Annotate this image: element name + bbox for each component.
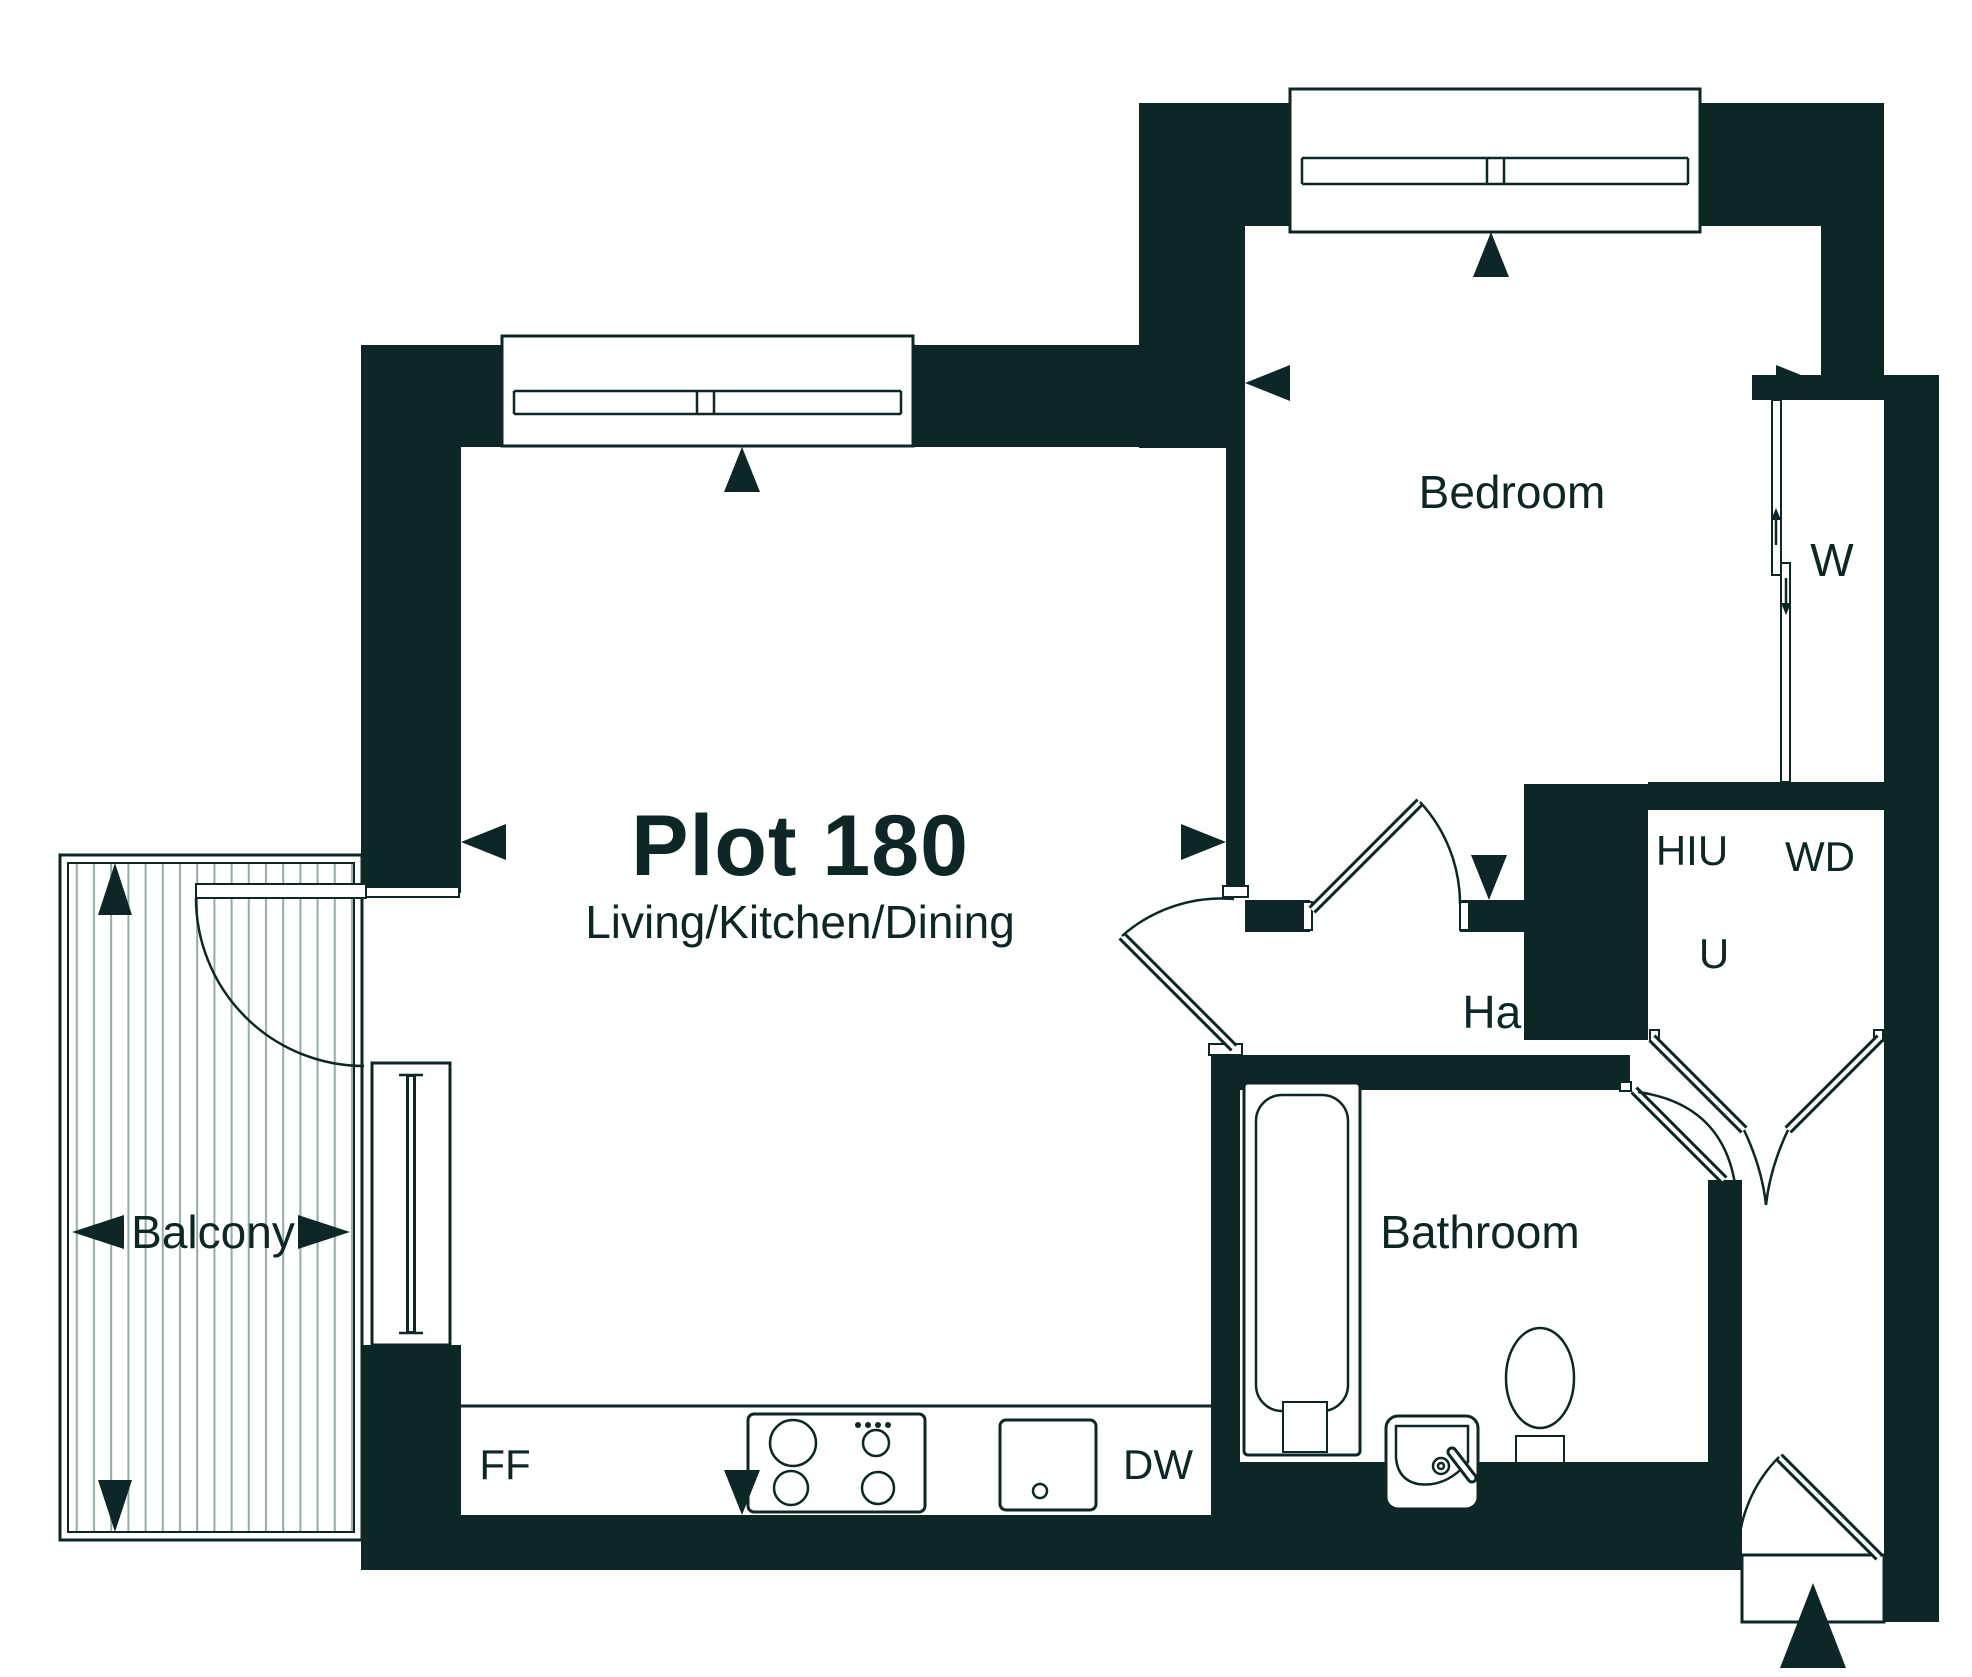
- window-frame-bedroom-icon: [1290, 89, 1700, 232]
- basin-icon: [1386, 1416, 1478, 1509]
- balcony-decking: [68, 863, 354, 1532]
- balcony-door-leaf-icon: [196, 884, 366, 898]
- washer-dryer-label: WD: [1785, 833, 1855, 880]
- sink-icon: [1000, 1420, 1096, 1510]
- hall-label: Hall: [1462, 986, 1541, 1038]
- floorplan-page: Plot 180 Living/Kitchen/Dining Bedroom H…: [0, 0, 1972, 1677]
- dishwasher-label: DW: [1123, 1441, 1193, 1488]
- wall-living-hall-partition: [1226, 447, 1245, 897]
- wall-left: [361, 345, 461, 893]
- wall-cupboard-top: [1648, 782, 1884, 810]
- utility-label: U: [1699, 930, 1729, 977]
- balcony-glazing-panel: [372, 1063, 450, 1345]
- wall-bottom-kitchen: [361, 1515, 1240, 1570]
- bath-icon: [1244, 1083, 1360, 1455]
- wall-right-upper: [1821, 103, 1884, 375]
- hiu-label: HIU: [1656, 827, 1728, 874]
- hob-icon: [748, 1414, 925, 1512]
- floorplan-drawing: Plot 180 Living/Kitchen/Dining Bedroom H…: [0, 0, 1972, 1677]
- plot-subtitle: Living/Kitchen/Dining: [585, 896, 1015, 948]
- living-window: [502, 336, 913, 446]
- balcony-area: [60, 855, 362, 1540]
- bedroom-label: Bedroom: [1419, 466, 1606, 518]
- plot-title: Plot 180: [631, 798, 969, 894]
- wall-cupboard-west-block: [1524, 784, 1648, 1040]
- bedroom-window: [1290, 89, 1700, 232]
- wall-bathroom-east: [1708, 1180, 1742, 1570]
- balcony-label: Balcony: [131, 1206, 295, 1258]
- wardrobe-label: W: [1810, 534, 1854, 586]
- fridge-freezer-label: FF: [479, 1441, 530, 1488]
- wall-right-lower: [1884, 375, 1939, 1622]
- wall-bedroom-south-a: [1245, 900, 1310, 932]
- wall-bathroom-west: [1211, 1055, 1240, 1462]
- bathroom-label: Bathroom: [1380, 1206, 1579, 1258]
